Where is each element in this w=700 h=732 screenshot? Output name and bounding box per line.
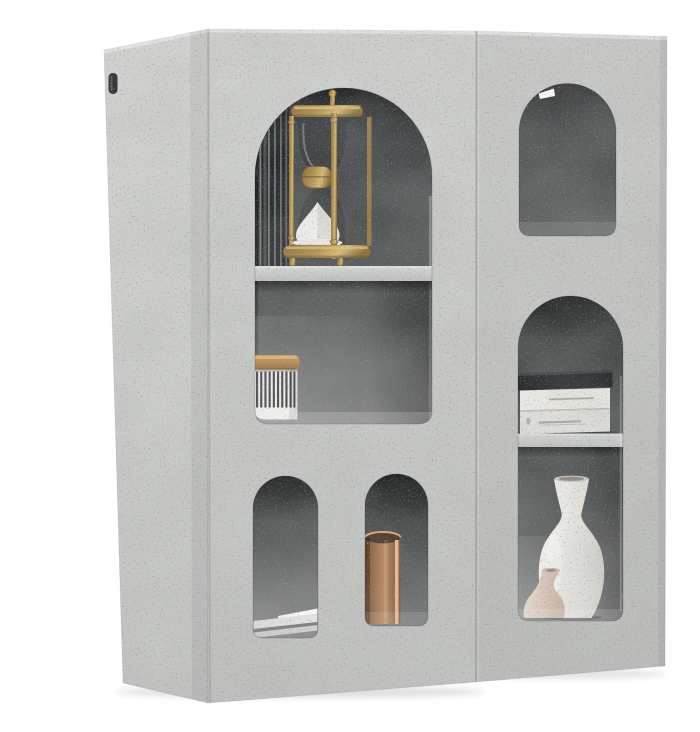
product-image	[40, 16, 700, 716]
concrete-texture-overlays	[40, 16, 700, 716]
wall-cabinet-product-photo	[40, 16, 700, 716]
concrete-light-speckle-texture	[40, 16, 700, 716]
